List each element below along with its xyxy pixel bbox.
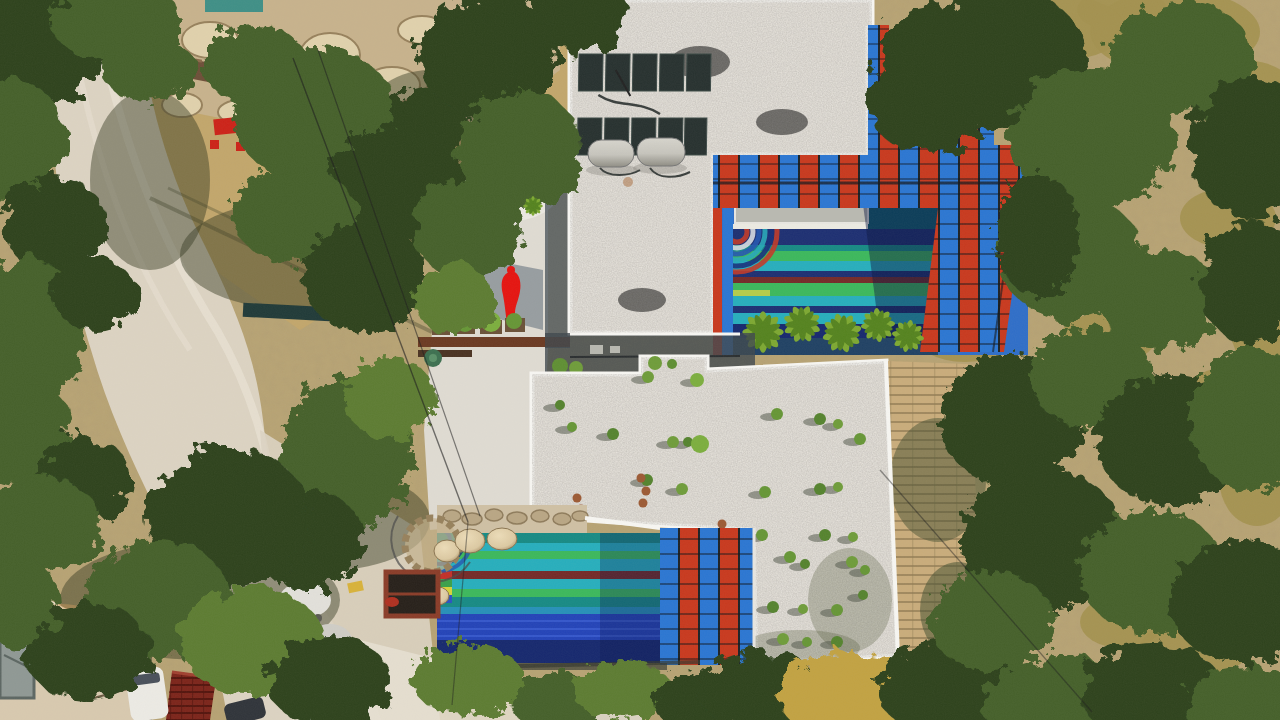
pool-walkway (735, 206, 868, 223)
teal-tarp (205, 0, 263, 12)
courtyard-palm (523, 196, 543, 216)
pool-shade-2 (600, 533, 660, 663)
notch-bush-2 (667, 359, 677, 369)
big-roof-bush (691, 435, 709, 453)
notch-bush (648, 356, 662, 370)
utility-box (590, 345, 603, 354)
utility-box-2 (610, 346, 620, 353)
round-table-top (429, 354, 437, 362)
aerial-photo (0, 0, 1280, 720)
lower-pool-zone (385, 505, 754, 670)
aerial-photo-canvas (0, 0, 1280, 720)
rust-frame (385, 572, 438, 616)
sculpture-head (507, 266, 515, 274)
